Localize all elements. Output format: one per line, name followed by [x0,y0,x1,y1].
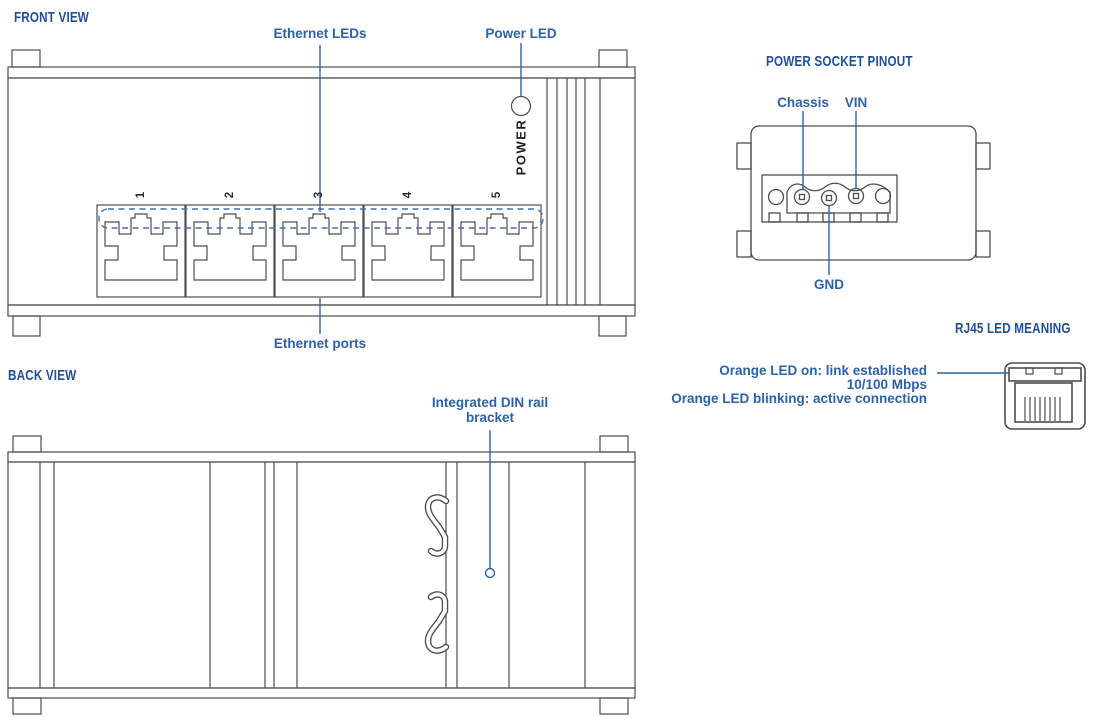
rj45-led-description: Orange LED on: link established 10/100 M… [671,364,927,406]
vin-pin-label: VIN [845,95,868,110]
diagram-linework [0,0,1105,724]
rj45-led-line-3: Orange LED blinking: active connection [671,392,927,406]
back-foot-bottom-left-icon [13,698,41,714]
din-bracket-point-icon [486,569,495,578]
ethernet-leds-dashed-outline [99,209,543,228]
back-foot-bottom-right-icon [600,698,628,714]
back-view-title: BACK VIEW [8,367,76,384]
chassis-pin-label: Chassis [777,95,829,110]
front-leader-lines [320,43,521,334]
back-top-rail [8,452,635,462]
front-foot-bottom-left-icon [13,316,40,336]
rj45-jack-outlines [105,214,533,280]
back-bottom-rail [8,688,635,698]
back-foot-top-right-icon [600,436,628,452]
front-vent-slots [547,78,600,305]
port-number-3: 3 [313,192,325,198]
din-bracket-label: Integrated DIN rail bracket [420,395,560,425]
port-number-2: 2 [224,192,236,198]
ethernet-leds-label: Ethernet LEDs [273,26,366,41]
front-foot-bottom-right-icon [599,316,626,336]
rj45-led-line-2: 10/100 Mbps [671,378,927,392]
gnd-pin-label: GND [814,277,844,292]
gnd-pin-icon [822,191,837,206]
front-view-title: FRONT VIEW [14,9,89,26]
rj45-led-strip [1009,368,1081,381]
port-number-4: 4 [402,192,414,198]
chassis-pin-icon [795,190,810,205]
back-foot-top-left-icon [13,436,41,452]
front-foot-top-right-icon [599,50,627,67]
power-silkscreen-label: POWER [514,119,529,176]
power-led-label: Power LED [485,26,556,41]
back-body [8,462,635,688]
socket-leader-lines [803,111,856,275]
rj45-jack-icon [1005,363,1085,429]
rj45-pins [1025,397,1060,421]
back-panel-lines [40,462,585,688]
device-diagram-page: FRONT VIEW Ethernet LEDs Power LED Ether… [0,0,1105,724]
front-top-rail [8,67,635,78]
rj45-led-meaning-title: RJ45 LED MEANING [955,320,1071,337]
socket-mount-hole-left-icon [769,190,784,205]
rj45-pin-cavity [1015,383,1072,422]
power-socket-pinout-title: POWER SOCKET PINOUT [766,53,913,70]
ethernet-ports-label: Ethernet ports [274,336,366,351]
din-rail-clip-icons [428,497,446,650]
front-bottom-rail [8,305,635,316]
power-led-icon [512,97,531,116]
power-socket-drawing [737,126,990,260]
back-view-drawing [8,436,635,714]
port-number-1: 1 [135,192,147,198]
rj45-led-line-1: Orange LED on: link established [671,364,927,378]
port-number-5: 5 [491,192,503,198]
front-foot-top-left-icon [12,50,40,67]
